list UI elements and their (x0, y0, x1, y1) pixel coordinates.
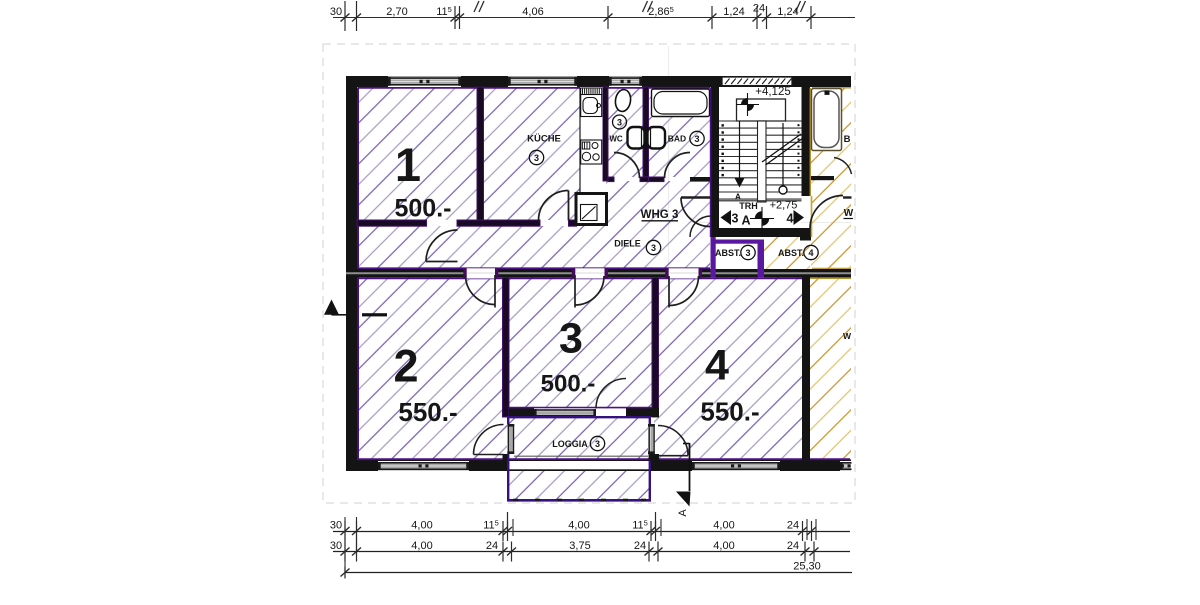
svg-text:3: 3 (617, 118, 622, 128)
svg-text:1: 1 (395, 138, 421, 191)
svg-text:3: 3 (732, 212, 739, 226)
svg-text:1,24: 1,24 (777, 6, 798, 18)
svg-text:500.-: 500.- (541, 371, 596, 398)
svg-text:4,00: 4,00 (568, 520, 589, 532)
svg-text:30: 30 (330, 520, 342, 532)
svg-text:3,75: 3,75 (569, 540, 590, 552)
svg-text:A: A (735, 192, 741, 202)
svg-text:W: W (843, 331, 852, 341)
svg-text:4: 4 (787, 212, 794, 226)
svg-text:550.-: 550.- (398, 397, 457, 427)
svg-text:TRH: TRH (739, 201, 758, 211)
svg-text:2,70: 2,70 (386, 6, 407, 18)
svg-text:3: 3 (595, 439, 600, 449)
svg-text:4,00: 4,00 (411, 540, 432, 552)
svg-text:3: 3 (651, 243, 656, 253)
svg-text:KÜCHE: KÜCHE (527, 134, 561, 145)
svg-text:550.-: 550.- (700, 397, 759, 427)
svg-text:1,24: 1,24 (723, 6, 744, 18)
svg-text:ABST.: ABST. (715, 248, 741, 258)
svg-text:4: 4 (705, 342, 729, 390)
svg-text:24: 24 (634, 540, 646, 552)
svg-text:3: 3 (745, 248, 750, 258)
svg-text:4,00: 4,00 (411, 520, 432, 532)
svg-text:24: 24 (787, 540, 799, 552)
svg-text:3: 3 (694, 134, 699, 144)
svg-text:A: A (677, 509, 689, 517)
svg-text:4: 4 (808, 248, 813, 258)
svg-text:W: W (844, 208, 854, 219)
svg-text:4,06: 4,06 (522, 6, 543, 18)
svg-text:DIELE: DIELE (614, 239, 641, 249)
svg-text:BAD: BAD (668, 134, 686, 144)
svg-text:+4,125: +4,125 (755, 86, 791, 98)
svg-text:30: 30 (330, 6, 342, 18)
svg-text:30: 30 (330, 540, 342, 552)
svg-text:A: A (741, 214, 750, 228)
svg-text:ABST.: ABST. (778, 248, 804, 258)
svg-text:24: 24 (753, 3, 765, 15)
svg-text:25,30: 25,30 (793, 561, 821, 573)
svg-text:4,00: 4,00 (713, 520, 734, 532)
svg-text:3: 3 (534, 153, 539, 163)
svg-text:B: B (844, 134, 851, 145)
svg-text:WC: WC (609, 135, 623, 144)
svg-text:24: 24 (486, 540, 498, 552)
svg-text:+2,75: +2,75 (770, 200, 798, 212)
svg-text:2: 2 (393, 341, 418, 392)
svg-text:24: 24 (787, 520, 799, 532)
svg-text:4,00: 4,00 (713, 540, 734, 552)
svg-text:LOGGIA: LOGGIA (552, 439, 588, 449)
svg-text:3: 3 (559, 315, 583, 363)
svg-text:500.-: 500.- (395, 195, 452, 223)
svg-text:WHG 3: WHG 3 (641, 209, 679, 221)
